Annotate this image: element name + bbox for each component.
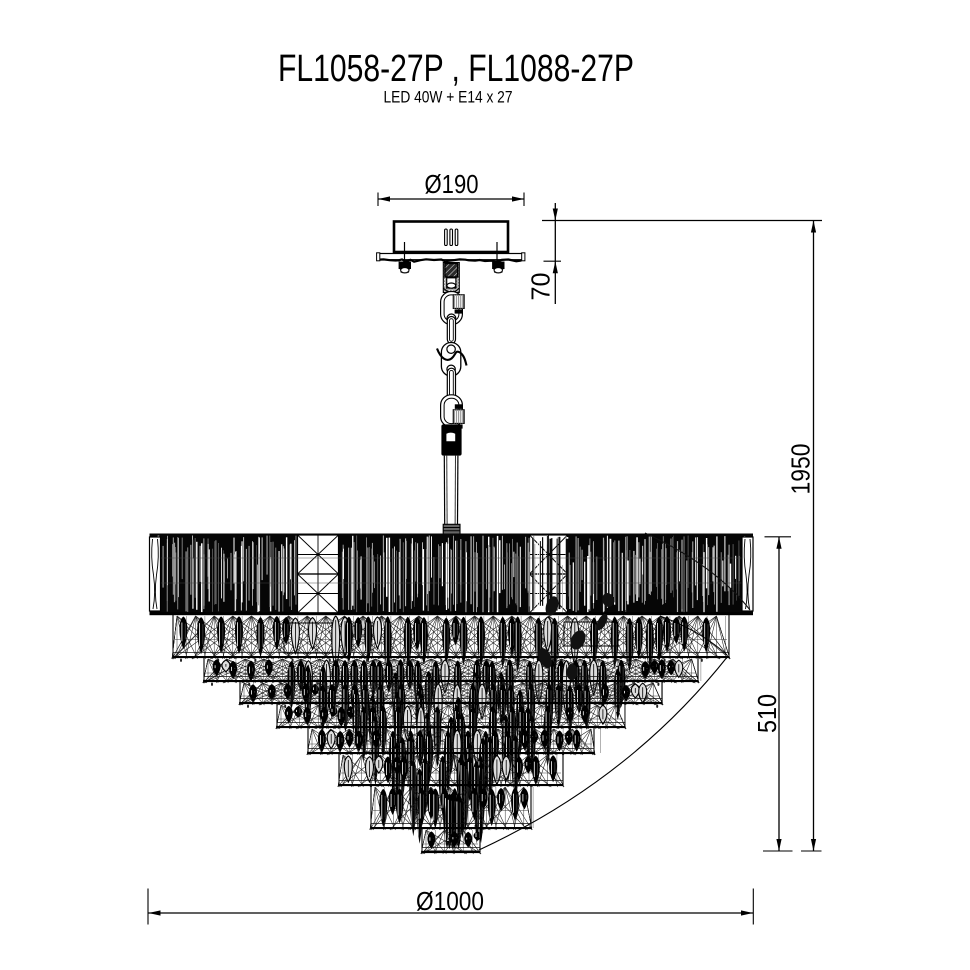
svg-text:510: 510	[754, 694, 782, 733]
svg-text:70: 70	[528, 273, 556, 301]
svg-text:FL1058-27P , FL1088-27P: FL1058-27P , FL1088-27P	[278, 47, 634, 89]
svg-text:1950: 1950	[788, 444, 816, 495]
svg-text:LED 40W + E14 x 27: LED 40W + E14 x 27	[384, 89, 513, 107]
svg-text:Ø1000: Ø1000	[416, 888, 484, 916]
svg-text:Ø190: Ø190	[425, 171, 479, 199]
